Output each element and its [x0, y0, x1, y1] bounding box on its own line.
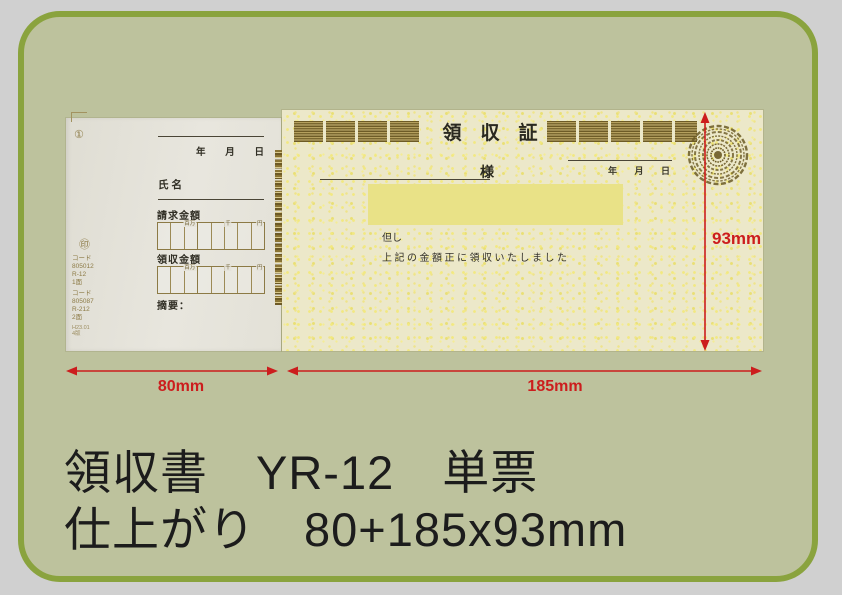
stub-month-label: 月: [225, 144, 235, 158]
unit-thousand-label: 千: [224, 266, 232, 271]
receipt-main: 領 収 証 様 年 月 日 但し 上記の金額正に領収いたしました: [282, 110, 763, 351]
print-footnote: H23.01 4版: [72, 325, 90, 337]
stub-name-underline: [158, 199, 264, 200]
receipt-stub: ① 年 月 日 氏名 請求金額 百万 千 円 領収金額 百万 千 円 摘要： ㊞…: [66, 118, 281, 351]
amount-cell: [212, 267, 225, 293]
amount-cell: [158, 267, 171, 293]
unit-million-label: 百万: [183, 222, 196, 227]
code-face: 1面: [72, 279, 94, 287]
code-value: 805012: [72, 263, 94, 271]
received-amount-table: 百万 千 円: [157, 266, 265, 294]
stub-name-label: 氏名: [158, 177, 185, 192]
unit-yen-label: 円: [256, 222, 264, 227]
corner-crop-mark-icon: [71, 112, 87, 122]
product-caption: 領収書 YR-12 単票 仕上がり 80+185x93mm: [64, 444, 627, 558]
unit-thousand-label: 千: [224, 222, 232, 227]
remarks-label: 摘要：: [157, 297, 190, 312]
dimension-label-stub-width: 80mm: [146, 378, 216, 396]
addressee-underline: [320, 179, 490, 180]
main-year-label: 年: [608, 164, 617, 177]
received-amount-label: 領収金額: [157, 251, 201, 266]
amount-cell: [212, 223, 225, 249]
main-date-underline: [568, 160, 672, 161]
main-day-label: 日: [661, 164, 670, 177]
code-label: コード: [72, 255, 94, 263]
dimension-label-height: 93mm: [712, 229, 761, 249]
guilloche-seal-icon: [686, 123, 750, 187]
product-code-block-1: コード 805012 R-12 1面: [72, 255, 94, 287]
billing-amount-label: 請求金額: [157, 207, 201, 222]
unit-yen-label: 円: [256, 266, 264, 271]
amount-cell: [238, 267, 251, 293]
footnote-line: 4版: [72, 331, 90, 337]
receipt-title: 領 収 証: [430, 118, 550, 145]
unit-million-label: 百万: [183, 266, 196, 271]
perforation-ornament: [275, 150, 282, 305]
stub-date-labels: 年 月 日: [196, 144, 264, 158]
code-model: R-212: [72, 306, 94, 314]
main-date-labels: 年 月 日: [608, 164, 670, 177]
catalog-page: ① 年 月 日 氏名 請求金額 百万 千 円 領収金額 百万 千 円 摘要： ㊞…: [0, 0, 842, 595]
amount-cell: [158, 223, 171, 249]
dimension-label-main-width: 185mm: [520, 378, 590, 396]
stub-day-label: 日: [254, 144, 264, 158]
circled-number-icon: ①: [74, 128, 84, 141]
code-model: R-12: [72, 271, 94, 279]
code-face: 2面: [72, 314, 94, 322]
guilloche-band-left: [294, 121, 420, 142]
amount-cell: [198, 223, 211, 249]
seal-mark-icon: ㊞: [79, 236, 90, 252]
amount-cell: [198, 267, 211, 293]
receipt-statement: 上記の金額正に領収いたしました: [382, 249, 570, 264]
caption-finished-size: 仕上がり 80+185x93mm: [64, 501, 627, 558]
proviso-label: 但し: [382, 229, 402, 244]
caption-product-name: 領収書 YR-12 単票: [64, 444, 627, 501]
main-month-label: 月: [634, 164, 643, 177]
billing-amount-table: 百万 千 円: [157, 222, 265, 250]
code-label: コード: [72, 290, 94, 298]
product-code-block-2: コード 805087 R-212 2面: [72, 290, 94, 322]
stub-date-underline: [158, 136, 264, 137]
amount-highlight-box: [368, 184, 623, 225]
guilloche-band-right: [547, 121, 697, 142]
stub-year-label: 年: [196, 144, 206, 158]
amount-cell: [238, 223, 251, 249]
code-value: 805087: [72, 298, 94, 306]
